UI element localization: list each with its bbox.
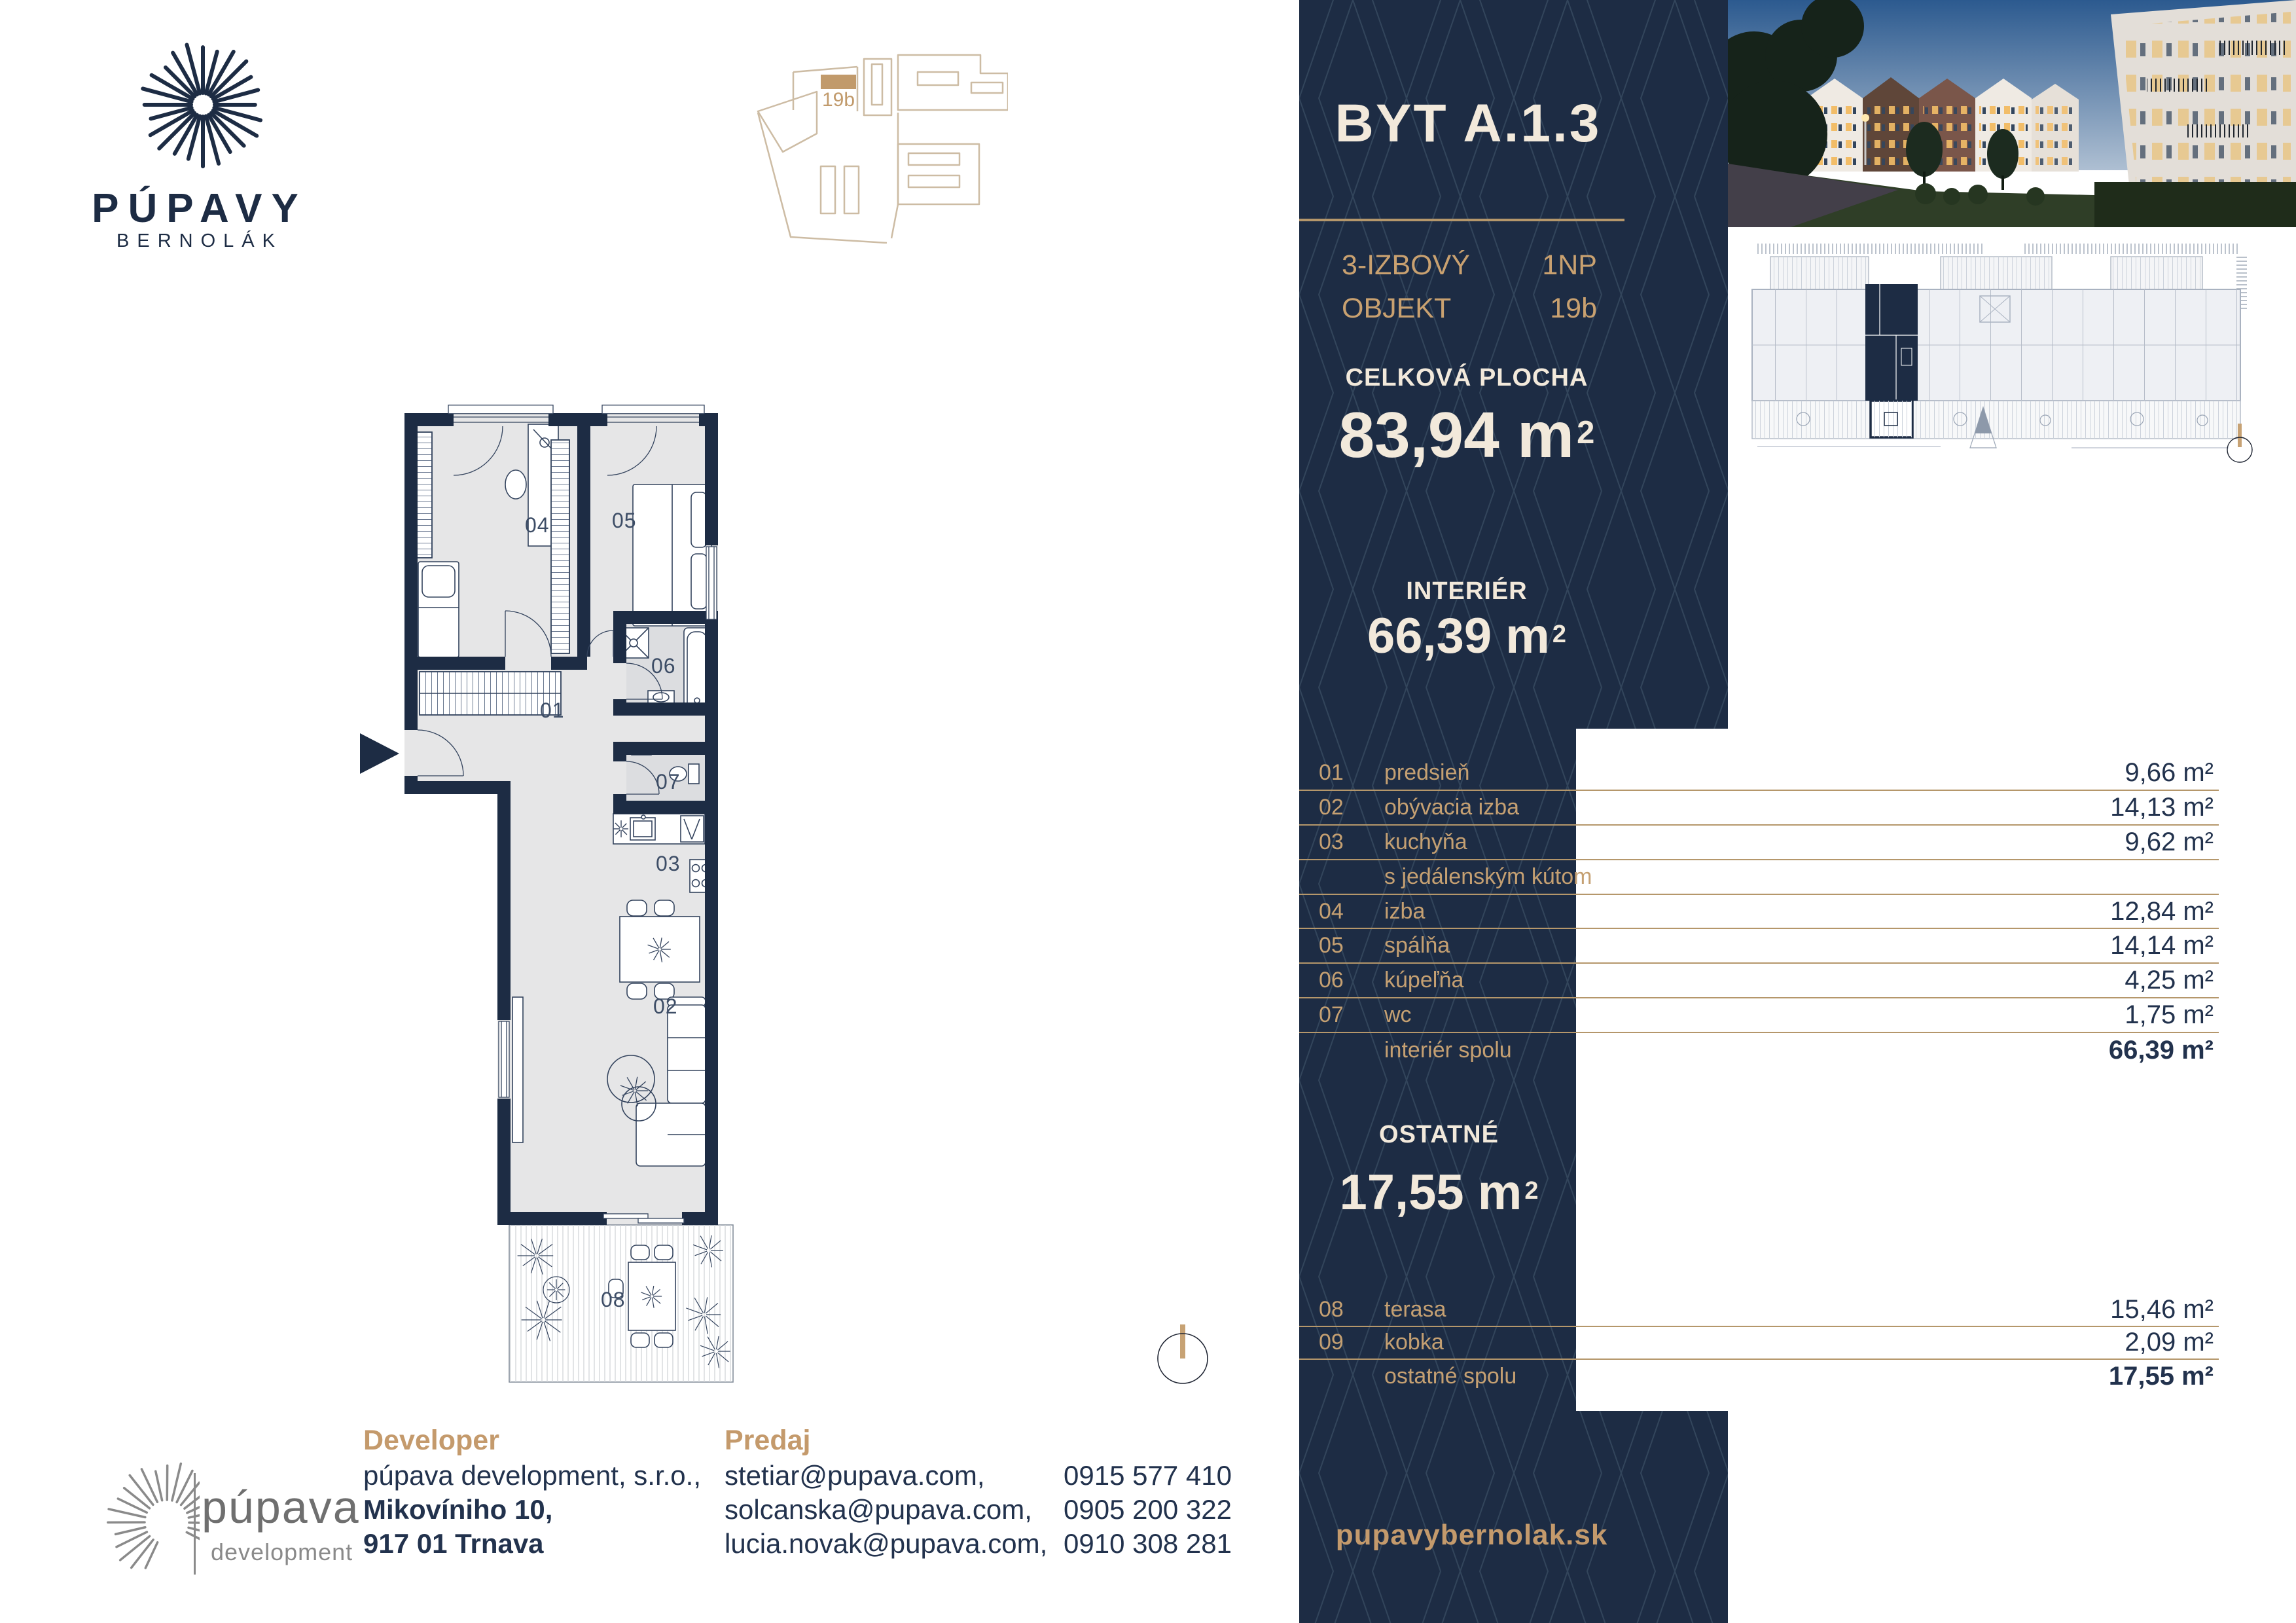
sales-phone: 0915 577 410 [1064, 1459, 1232, 1493]
room-number: 04 [1299, 899, 1361, 924]
room-area: 4,25 m² [1991, 966, 2219, 995]
total-area-value: 83,94 m2 [1299, 398, 1634, 472]
room-number: 01 [1299, 760, 1361, 786]
room-name: interiér spolu [1361, 1038, 1991, 1063]
room-name: izba [1361, 899, 1991, 924]
site-plan: 19b [753, 47, 1008, 244]
room-area: 66,39 m² [1991, 1036, 2219, 1065]
spec-floor: 1NP [1542, 244, 1597, 287]
apartment-title: BYT A.1.3 [1299, 93, 1637, 155]
total-area-label: CELKOVÁ PLOCHA [1299, 364, 1634, 392]
room-area: 14,13 m² [1991, 793, 2219, 822]
room-number: 09 [1299, 1330, 1361, 1355]
room-number: 05 [1299, 933, 1361, 958]
room-name: obývacia izba [1361, 795, 1991, 820]
room-name: kobka [1361, 1330, 1991, 1355]
table-row: 07 wc 1,75 m² [1299, 998, 2219, 1033]
apartment-floorplan: 01 02 03 04 05 06 07 08 [340, 405, 772, 1416]
sales-email: lucia.novak@pupava.com, [725, 1527, 1047, 1561]
table-row: 09 kobka 2,09 m² [1299, 1327, 2219, 1360]
interior-area-label: INTERIÉR [1299, 577, 1634, 606]
site-highlight-label: 19b [822, 89, 855, 111]
room-name: spálňa [1361, 933, 1991, 958]
other-area-value: 17,55 m2 [1299, 1164, 1579, 1221]
developer-street: Mikovíniho 10, [363, 1493, 701, 1527]
room-number: 03 [1299, 830, 1361, 855]
table-row: interiér spolu 66,39 m² [1299, 1033, 2219, 1068]
room-label-02: 02 [653, 994, 678, 1018]
website-url: pupavybernolak.sk [1299, 1519, 1644, 1552]
room-name: predsieň [1361, 760, 1991, 786]
room-number: 06 [1299, 968, 1361, 993]
developer-city: 917 01 Trnava [363, 1527, 701, 1561]
room-name: ostatné spolu [1361, 1364, 1991, 1389]
other-rooms-table: 08 terasa 15,46 m² 09 kobka 2,09 m² osta… [1299, 1294, 2219, 1393]
room-name: s jedálenským kútom [1361, 864, 1991, 890]
room-area: 9,62 m² [1991, 828, 2219, 857]
sales-phone: 0910 308 281 [1064, 1527, 1232, 1561]
room-area: 12,84 m² [1991, 897, 2219, 926]
sup-2: 2 [1552, 621, 1566, 648]
room-label-04: 04 [525, 513, 550, 537]
room-area: 15,46 m² [1991, 1295, 2219, 1324]
room-name: terasa [1361, 1297, 1991, 1322]
room-number: 02 [1299, 795, 1361, 820]
room-number: 08 [1299, 1297, 1361, 1322]
interior-rooms-table: 01 predsieň 9,66 m² 02 obývacia izba 14,… [1299, 756, 2219, 1068]
room-label-03: 03 [656, 852, 681, 875]
table-row: 03 kuchyňa 9,62 m² [1299, 826, 2219, 860]
developer-address: púpava development, s.r.o., Mikovíniho 1… [363, 1459, 701, 1561]
overview-north-arrow-icon [2219, 422, 2265, 471]
room-area: 14,14 m² [1991, 931, 2219, 960]
room-label-05: 05 [612, 509, 637, 532]
apartment-factsheet-page: PÚPAVY BERNOLÁK 19b [0, 0, 2296, 1623]
table-row: s jedálenským kútom [1299, 860, 2219, 895]
sup-2: 2 [1577, 415, 1594, 450]
interior-area-value: 66,39 m2 [1299, 608, 1634, 665]
table-row: 01 predsieň 9,66 m² [1299, 756, 2219, 791]
room-area: 1,75 m² [1991, 1000, 2219, 1030]
table-row: 04 izba 12,84 m² [1299, 895, 2219, 930]
sales-emails: stetiar@pupava.com, solcanska@pupava.com… [725, 1459, 1047, 1561]
sales-phone: 0905 200 322 [1064, 1493, 1232, 1527]
table-row: 05 spálňa 14,14 m² [1299, 929, 2219, 964]
building-photo [1728, 0, 2296, 227]
room-number: 07 [1299, 1002, 1361, 1028]
room-label-07: 07 [656, 770, 681, 793]
room-name: kúpeľňa [1361, 968, 1991, 993]
north-arrow-icon [1153, 1319, 1215, 1388]
developer-heading: Developer [363, 1425, 499, 1457]
developer-logo-text: púpava [202, 1481, 360, 1533]
brand-name: PÚPAVY [82, 185, 317, 232]
developer-logo-subtext: development [211, 1539, 353, 1566]
room-area: 17,55 m² [1991, 1362, 2219, 1391]
dandelion-logo-icon [131, 36, 275, 180]
other-area-label: OSTATNÉ [1299, 1121, 1579, 1149]
table-row: 06 kúpeľňa 4,25 m² [1299, 964, 2219, 998]
spec-building: 19b [1542, 287, 1597, 330]
room-area: 2,09 m² [1991, 1328, 2219, 1357]
entrance-marker-icon [360, 733, 399, 774]
sales-phones: 0915 577 410 0905 200 322 0910 308 281 [1064, 1459, 1232, 1561]
room-name: wc [1361, 1002, 1991, 1028]
room-name: kuchyňa [1361, 830, 1991, 855]
sales-email: solcanska@pupava.com, [725, 1493, 1047, 1527]
room-label-01: 01 [540, 699, 565, 722]
sup-2: 2 [1524, 1177, 1538, 1205]
room-label-08: 08 [601, 1288, 626, 1311]
spec-object-label: OBJEKT [1342, 287, 1470, 330]
sales-heading: Predaj [725, 1425, 810, 1457]
developer-logo-icon [69, 1457, 200, 1588]
table-row: ostatné spolu 17,55 m² [1299, 1360, 2219, 1393]
room-label-06: 06 [651, 654, 676, 678]
gold-divider [1299, 219, 1624, 221]
sales-email: stetiar@pupava.com, [725, 1459, 1047, 1493]
floor-overview-plan [1744, 244, 2248, 450]
logo-divider-bar [194, 1473, 196, 1575]
room-area: 9,66 m² [1991, 758, 2219, 788]
developer-company: púpava development, s.r.o., [363, 1459, 701, 1493]
table-row: 02 obývacia izba 14,13 m² [1299, 791, 2219, 826]
brand-subtitle: BERNOLÁK [82, 230, 317, 252]
highlighted-unit [1865, 284, 1918, 437]
spec-type: 3-IZBOVÝ [1342, 244, 1470, 287]
table-row: 08 terasa 15,46 m² [1299, 1294, 2219, 1327]
site-highlight-building [821, 75, 856, 89]
apartment-specs: 3-IZBOVÝ OBJEKT 1NP 19b [1342, 244, 1597, 330]
